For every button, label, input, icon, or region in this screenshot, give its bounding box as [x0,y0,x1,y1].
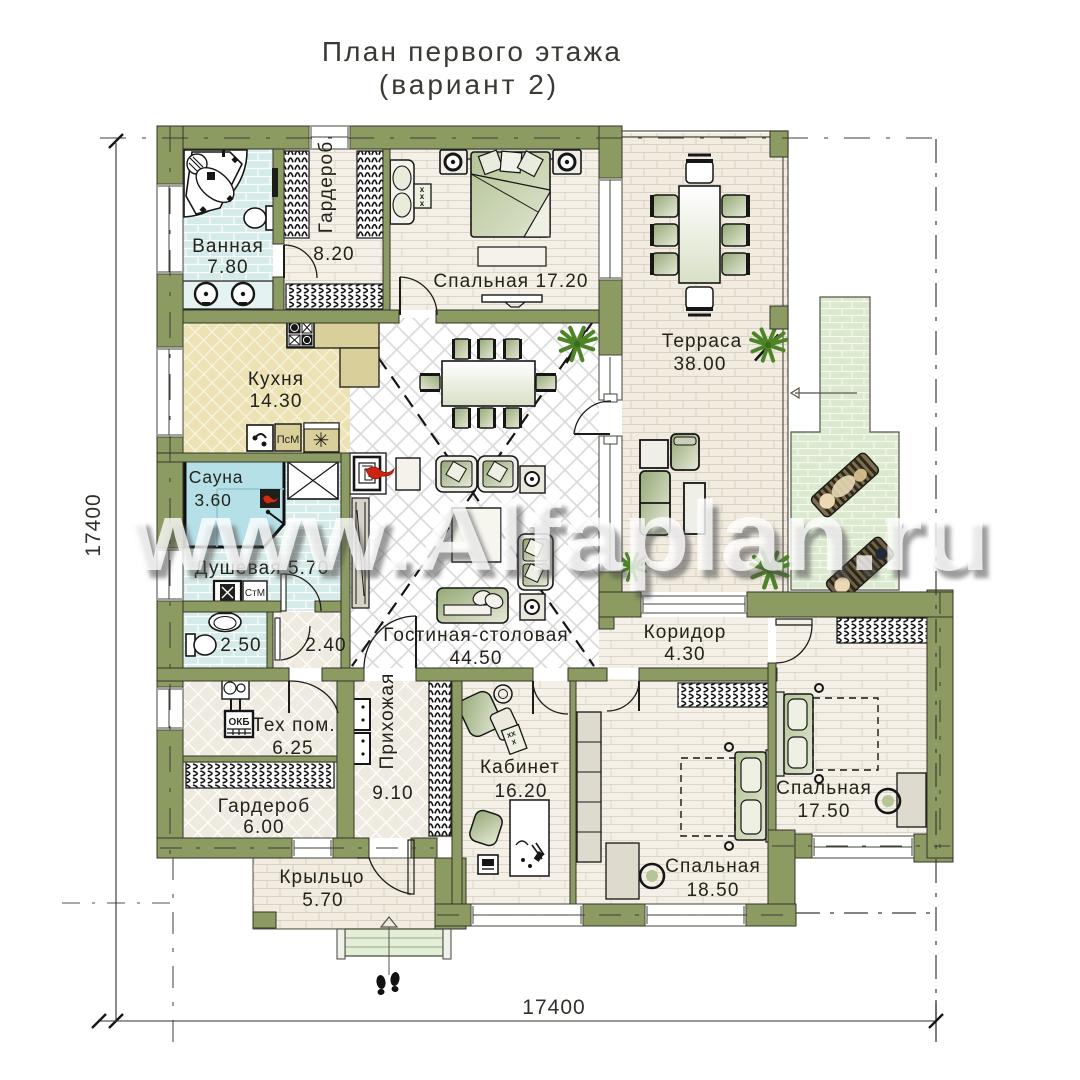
svg-text:Кухня: Кухня [248,369,304,390]
svg-text:Спальная: Спальная [665,856,761,877]
svg-text:Кабинет: Кабинет [480,757,560,778]
svg-text:ОКБ: ОКБ [228,717,249,728]
svg-text:8.20: 8.20 [313,244,354,265]
svg-text:9.10: 9.10 [372,783,413,804]
svg-text:17400: 17400 [82,493,105,556]
svg-text:Тех пом.: Тех пом. [252,715,335,736]
svg-text:✳: ✳ [313,430,330,452]
svg-text:4.30: 4.30 [664,644,705,665]
svg-text:14.30: 14.30 [249,391,302,412]
svg-text:Терраса: Терраса [662,331,743,352]
svg-text:ПсМ: ПсМ [277,434,300,446]
svg-text:44.50: 44.50 [449,648,502,669]
svg-text:План первого этажа: План первого этажа [322,36,622,67]
svg-text:6.00: 6.00 [243,817,284,838]
svg-text:Прихожая: Прихожая [377,673,398,770]
svg-text:Гардероб: Гардероб [316,141,337,233]
svg-text:16.20: 16.20 [494,781,547,802]
svg-text:Спальная 17.20: Спальная 17.20 [433,271,588,292]
svg-text:18.50: 18.50 [686,880,739,901]
svg-text:Ванная: Ванная [192,236,264,257]
svg-text:x: x [420,199,425,208]
svg-text:(вариант 2): (вариант 2) [379,69,559,100]
svg-text:Гостиная-столовая: Гостиная-столовая [383,625,569,646]
svg-text:www.Alfaplan.ru: www.Alfaplan.ru [129,481,990,591]
svg-text:38.00: 38.00 [673,354,726,375]
svg-text:6.25: 6.25 [272,738,313,759]
svg-text:7.80: 7.80 [207,257,248,278]
svg-text:2.50: 2.50 [220,635,261,656]
svg-text:2.40: 2.40 [305,635,346,656]
svg-text:Спальная: Спальная [776,778,872,799]
svg-text:Гардероб: Гардероб [218,796,310,817]
svg-text:Коридор: Коридор [644,622,727,643]
svg-text:17400: 17400 [522,996,585,1019]
svg-text:Крыльцо: Крыльцо [279,867,364,888]
svg-text:5.70: 5.70 [302,890,343,911]
svg-text:17.50: 17.50 [797,801,850,822]
